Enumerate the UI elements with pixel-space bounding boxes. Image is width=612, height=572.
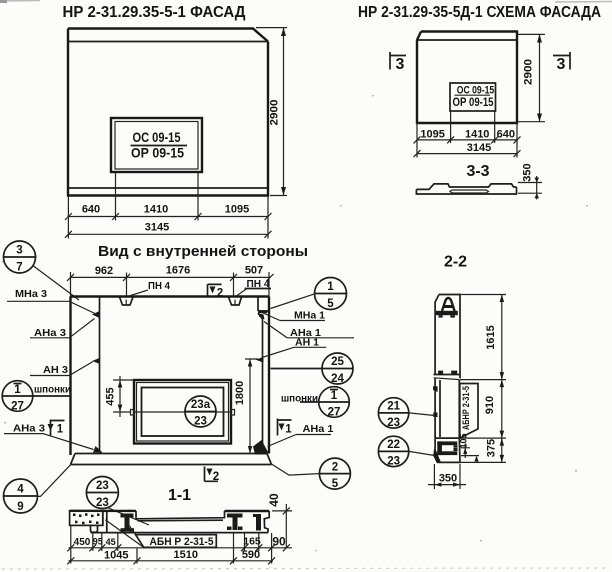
svg-text:2-2: 2-2 (444, 254, 467, 271)
svg-text:АНа 3: АНа 3 (13, 424, 45, 435)
svg-text:350: 350 (522, 163, 534, 181)
svg-text:23: 23 (387, 417, 400, 429)
svg-text:АБНР 2-31-5: АБНР 2-31-5 (461, 386, 471, 430)
svg-text:450: 450 (74, 537, 91, 548)
svg-text:45: 45 (106, 537, 116, 547)
svg-text:1: 1 (57, 424, 64, 436)
svg-text:22: 22 (387, 439, 400, 451)
svg-text:ОР 09-15: ОР 09-15 (453, 95, 494, 109)
svg-text:455: 455 (105, 387, 117, 405)
svg-text:НР 2-31.29-35-5Д-1 СХЕМА ФАСАД: НР 2-31.29-35-5Д-1 СХЕМА ФАСАДА (358, 4, 601, 21)
svg-text:1510: 1510 (174, 549, 198, 561)
svg-text:ОС 09-15: ОС 09-15 (133, 129, 181, 145)
svg-text:1095: 1095 (420, 128, 444, 140)
svg-text:40: 40 (267, 493, 281, 507)
svg-text:2900: 2900 (269, 100, 281, 126)
svg-text:1-1: 1-1 (168, 487, 191, 504)
svg-text:1410: 1410 (144, 204, 168, 216)
svg-text:3-3: 3-3 (466, 163, 489, 180)
svg-text:ПН 4: ПН 4 (148, 281, 170, 292)
svg-text:24: 24 (331, 373, 344, 385)
svg-text:21: 21 (387, 401, 400, 413)
svg-text:350: 350 (439, 473, 457, 485)
svg-text:АБН Р 2-31-5: АБН Р 2-31-5 (150, 536, 214, 548)
svg-text:4: 4 (17, 484, 24, 496)
svg-text:5: 5 (332, 478, 339, 490)
svg-text:23: 23 (387, 456, 400, 468)
svg-text:3: 3 (396, 56, 405, 73)
svg-text:95: 95 (93, 537, 103, 547)
svg-text:МНа 3: МНа 3 (15, 289, 47, 300)
svg-text:590: 590 (242, 549, 260, 561)
svg-text:1410: 1410 (465, 128, 489, 140)
svg-text:шпонки: шпонки (34, 385, 71, 396)
svg-text:2: 2 (217, 288, 223, 300)
svg-text:27: 27 (11, 401, 24, 413)
svg-text:1: 1 (331, 390, 338, 402)
svg-text:90: 90 (272, 535, 286, 549)
svg-text:7: 7 (16, 262, 22, 274)
svg-text:1676: 1676 (166, 265, 190, 277)
svg-text:640: 640 (497, 128, 515, 140)
svg-text:АН 3: АН 3 (43, 365, 68, 376)
svg-text:165: 165 (243, 536, 261, 548)
svg-text:23: 23 (96, 497, 109, 509)
svg-text:1045: 1045 (104, 550, 128, 562)
svg-text:23: 23 (194, 416, 207, 428)
svg-text:27: 27 (328, 407, 341, 419)
svg-text:1615: 1615 (485, 325, 497, 349)
svg-text:507: 507 (245, 265, 263, 277)
svg-text:23а: 23а (191, 399, 211, 411)
svg-text:23: 23 (96, 480, 109, 492)
svg-text:910: 910 (484, 396, 496, 414)
svg-text:962: 962 (95, 265, 113, 277)
svg-text:3: 3 (557, 56, 566, 73)
svg-text:1: 1 (14, 384, 21, 396)
svg-text:3: 3 (16, 245, 22, 257)
svg-text:640: 640 (82, 204, 100, 216)
svg-text:5: 5 (327, 298, 334, 310)
svg-text:375: 375 (485, 439, 497, 457)
svg-text:МНа 1: МНа 1 (294, 311, 325, 322)
svg-text:2900: 2900 (523, 59, 535, 85)
svg-text:НР 2-31.29.35-5-1 ФАСАД: НР 2-31.29.35-5-1 ФАСАД (63, 4, 247, 21)
svg-text:1095: 1095 (225, 204, 249, 216)
svg-text:1: 1 (327, 281, 334, 293)
svg-text:105: 105 (459, 433, 469, 448)
svg-text:АНа 1: АНа 1 (303, 424, 334, 435)
svg-text:Вид с внутренней стороны: Вид с внутренней стороны (98, 243, 308, 260)
svg-text:9: 9 (17, 501, 23, 513)
svg-text:ОР 09-15: ОР 09-15 (131, 145, 184, 161)
svg-text:2: 2 (213, 471, 219, 483)
svg-text:2: 2 (332, 462, 338, 474)
svg-text:1: 1 (285, 424, 292, 436)
svg-text:25: 25 (331, 356, 344, 368)
svg-text:1800: 1800 (234, 381, 246, 405)
svg-text:3145: 3145 (467, 142, 491, 154)
svg-text:3145: 3145 (145, 221, 169, 233)
